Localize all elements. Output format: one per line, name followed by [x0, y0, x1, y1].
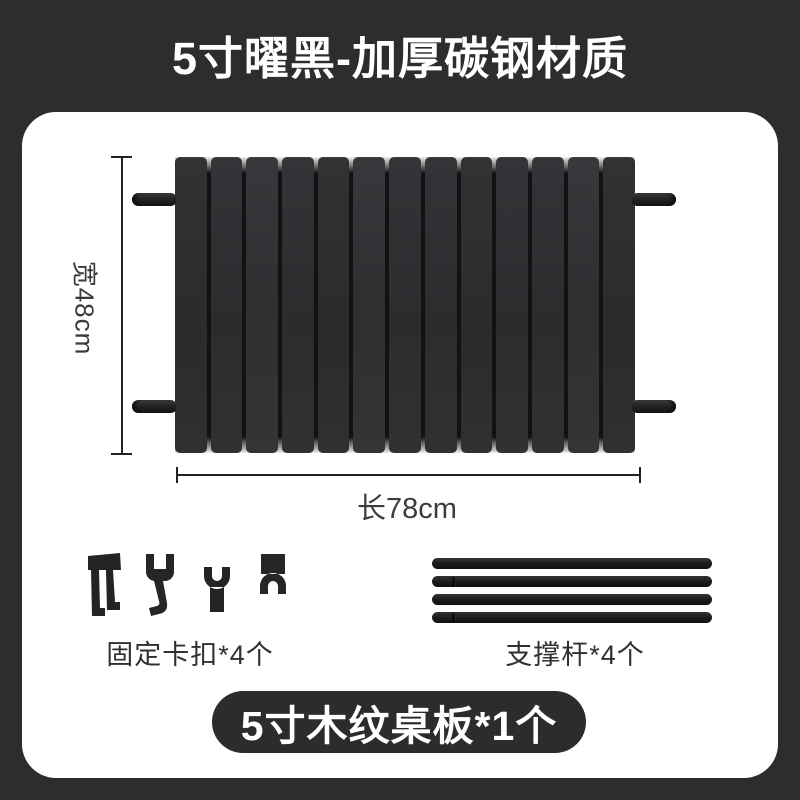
length-dimension-line [177, 474, 641, 476]
table-slat [532, 157, 564, 453]
width-dimension-tick-top [111, 156, 132, 158]
table-slat [211, 157, 243, 453]
table-slat [603, 157, 635, 453]
table-peg-top-right [631, 193, 676, 206]
length-dimension-tick-right [639, 467, 641, 483]
width-dimension-text: 宽48cm [68, 261, 105, 356]
table-top-image [175, 157, 635, 453]
product-badge: 5寸木纹桌板*1个 [212, 691, 586, 753]
table-slat [246, 157, 278, 453]
table-peg-bottom-right [631, 400, 676, 413]
length-dimension-tick-left [176, 467, 178, 483]
rods-group [432, 558, 712, 623]
clip-icon-3 [196, 550, 238, 620]
rods-count-label: 支撑杆*4个 [505, 633, 645, 672]
table-slat [496, 157, 528, 453]
table-peg-bottom-left [132, 400, 177, 413]
rod-icon [432, 594, 712, 605]
rod-icon [432, 558, 712, 569]
product-card: 宽48cm 长78cm 固定卡扣*4个 支撑杆*4个 5寸木纹桌板*1个 [22, 112, 778, 778]
width-dimension-line [121, 157, 123, 455]
clip-icon-1 [84, 550, 126, 620]
table-slat [389, 157, 421, 453]
table-slat [425, 157, 457, 453]
clips-count-label: 固定卡扣*4个 [106, 633, 274, 672]
clip-icon-4 [252, 550, 294, 620]
table-slat [282, 157, 314, 453]
table-slat [568, 157, 600, 453]
rod-icon [432, 612, 712, 623]
page-title: 5寸曜黑-加厚碳钢材质 [0, 33, 800, 85]
length-dimension-label: 长78cm [357, 485, 457, 527]
clip-icon-2 [140, 550, 182, 620]
table-slat [461, 157, 493, 453]
width-dimension-tick-bottom [111, 453, 132, 455]
table-slat [318, 157, 350, 453]
table-slat [353, 157, 385, 453]
table-slat [175, 157, 207, 453]
rod-icon [432, 576, 712, 587]
table-peg-top-left [132, 193, 177, 206]
clips-group [84, 550, 294, 620]
